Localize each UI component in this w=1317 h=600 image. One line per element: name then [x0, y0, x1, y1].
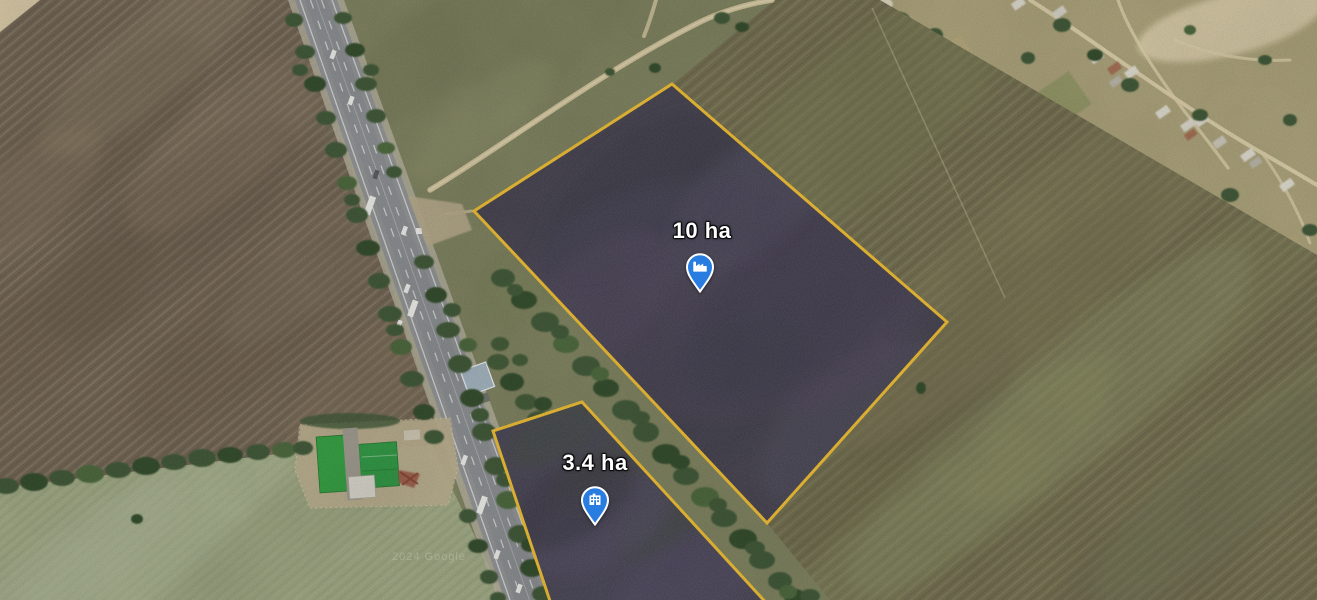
parcel-pin-10ha[interactable]	[685, 253, 715, 293]
parcel-pin-3-4ha[interactable]	[580, 486, 610, 526]
image-grain	[0, 0, 1317, 600]
parcel-area-label-10ha[interactable]: 10 ha	[673, 218, 732, 244]
imagery-watermark: 2024 Google	[392, 551, 466, 563]
satellite-terrain	[0, 0, 1317, 600]
map-canvas[interactable]: 10 ha 3.4 ha 2024 Google	[0, 0, 1317, 600]
parcel-area-label-3-4ha[interactable]: 3.4 ha	[562, 450, 627, 476]
pin-shape	[582, 487, 608, 524]
pin-shape	[687, 254, 713, 291]
